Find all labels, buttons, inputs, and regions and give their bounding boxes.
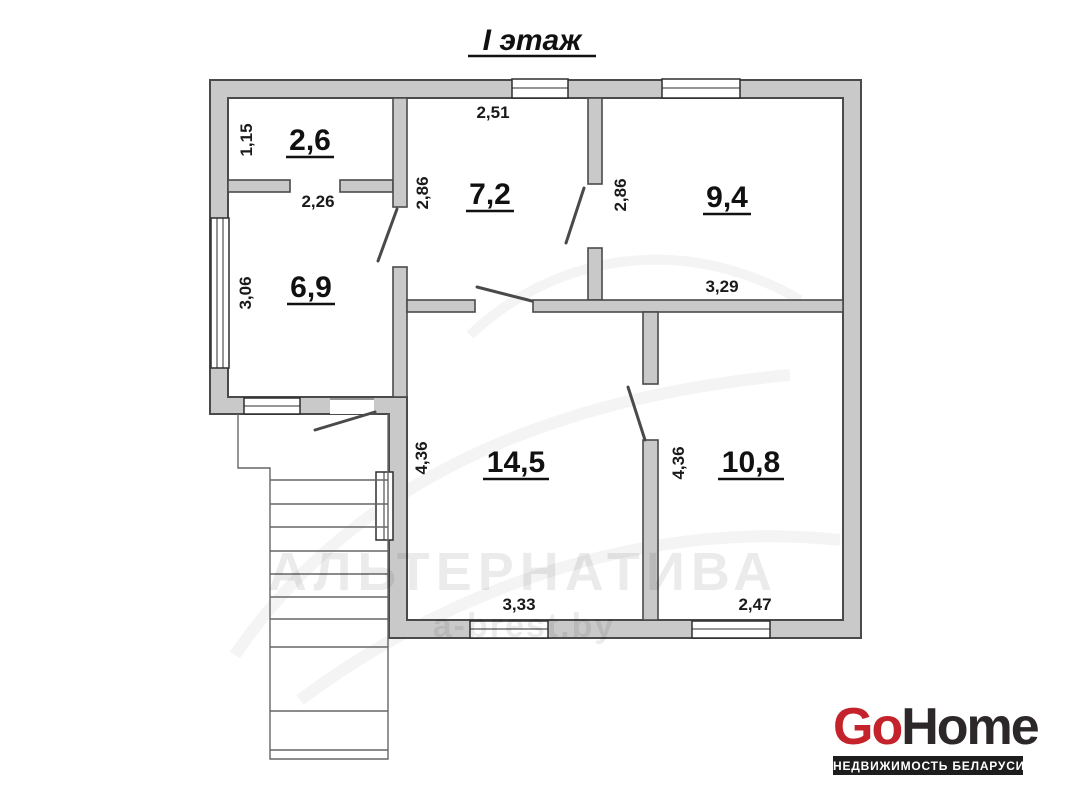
door-leaf-7-2 (566, 188, 584, 243)
logo-home-text: Home (901, 698, 1037, 756)
wall-middle-horizontal (533, 300, 843, 312)
door-leaf-6-9 (378, 209, 397, 261)
dim-2-26: 2,26 (301, 192, 334, 211)
room-label-10-8: 10,8 (722, 446, 780, 479)
wall-2-6-bottom-right (340, 180, 393, 192)
logo-tagline: НЕДВИЖИМОСТЬ БЕЛАРУСИ (833, 756, 1023, 775)
room-label-6-9: 6,9 (290, 271, 332, 304)
dim-1-15: 1,15 (237, 123, 256, 156)
watermark-text: АЛЬТЕРНАТИВА (268, 542, 778, 602)
doorway-opening (330, 398, 374, 414)
room-label-2-6: 2,6 (289, 124, 331, 157)
dim-2-47: 2,47 (738, 595, 771, 614)
room-label-14-5: 14,5 (487, 446, 545, 479)
logo-go-text: Go (833, 698, 901, 756)
dim-3-29: 3,29 (705, 277, 738, 296)
gohome-logo: GoHome НЕДВИЖИМОСТЬ БЕЛАРУСИ (833, 701, 1023, 775)
wall-left-vertical-upper (393, 98, 407, 207)
dim-2-51: 2,51 (476, 103, 509, 122)
wall-7-2-right-lower (588, 248, 602, 300)
wall-14-5-right-upper (643, 312, 658, 384)
logo-wordmark: GoHome (833, 701, 1023, 753)
dim-4-36-left: 4,36 (412, 441, 431, 474)
wall-2-6-bottom-left (228, 180, 290, 192)
wall-hall-bottom-left (407, 300, 475, 312)
dim-2-86-left: 2,86 (413, 176, 432, 209)
dim-3-06: 3,06 (236, 276, 255, 309)
floorplan-page: АЛЬТЕРНАТИВА a-brest.by I этаж 2,6 6,9 7… (0, 0, 1068, 800)
room-label-9-4: 9,4 (706, 181, 748, 214)
dim-4-36-right: 4,36 (669, 446, 688, 479)
dim-3-33: 3,33 (502, 595, 535, 614)
wall-left-vertical-lower (393, 267, 407, 397)
room-label-7-2: 7,2 (469, 178, 511, 211)
floor-title: I этаж (483, 24, 584, 57)
window-left (211, 218, 229, 368)
dim-2-86-right: 2,86 (611, 178, 630, 211)
floor-plan: АЛЬТЕРНАТИВА a-brest.by I этаж 2,6 6,9 7… (0, 0, 1068, 800)
wall-7-2-right-upper (588, 98, 602, 184)
